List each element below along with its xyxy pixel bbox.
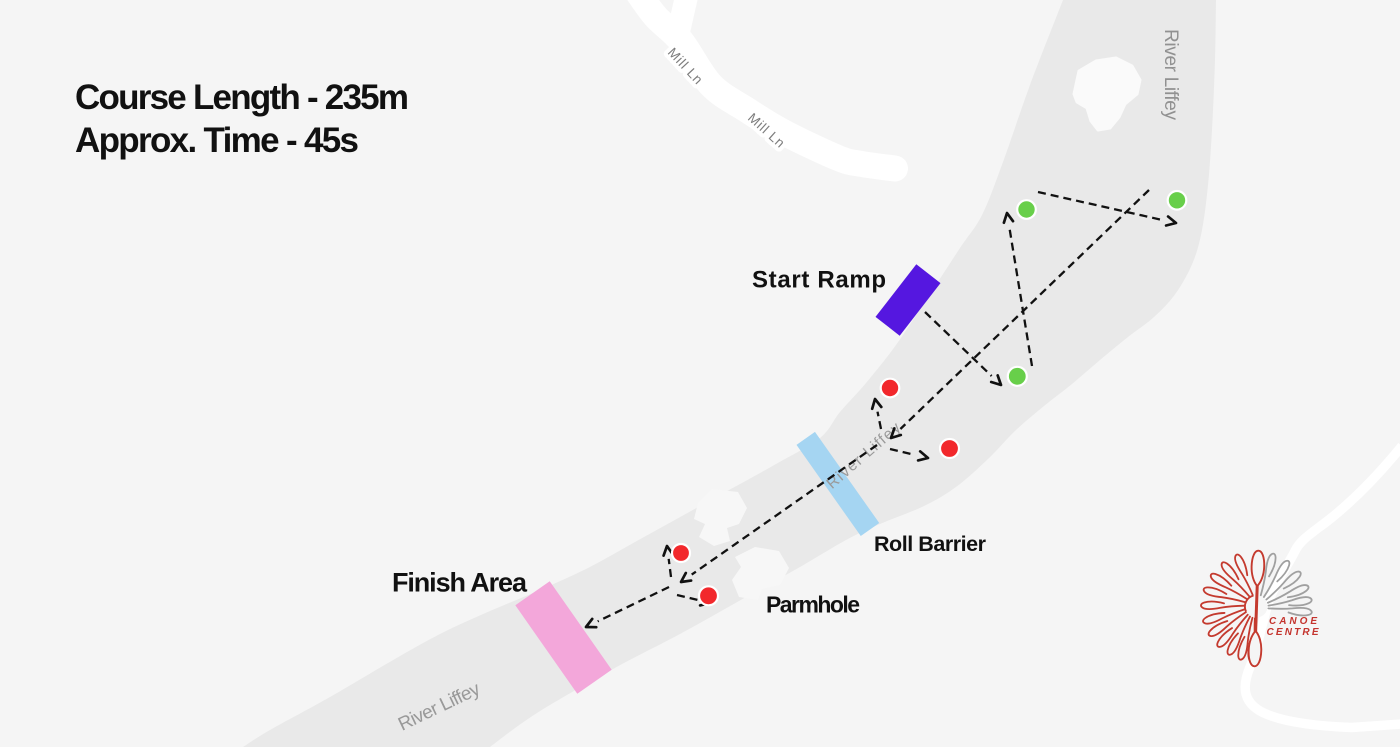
svg-text:Parmhole: Parmhole [766,592,860,618]
svg-text:Approx. Time - 45s: Approx. Time - 45s [75,121,359,160]
svg-text:Finish Area: Finish Area [392,568,528,598]
svg-text:Course Length - 235m: Course Length - 235m [75,78,409,117]
svg-text:Roll Barrier: Roll Barrier [874,532,987,556]
svg-text:River Liffey: River Liffey [1160,29,1181,121]
svg-text:Start Ramp: Start Ramp [752,267,886,294]
